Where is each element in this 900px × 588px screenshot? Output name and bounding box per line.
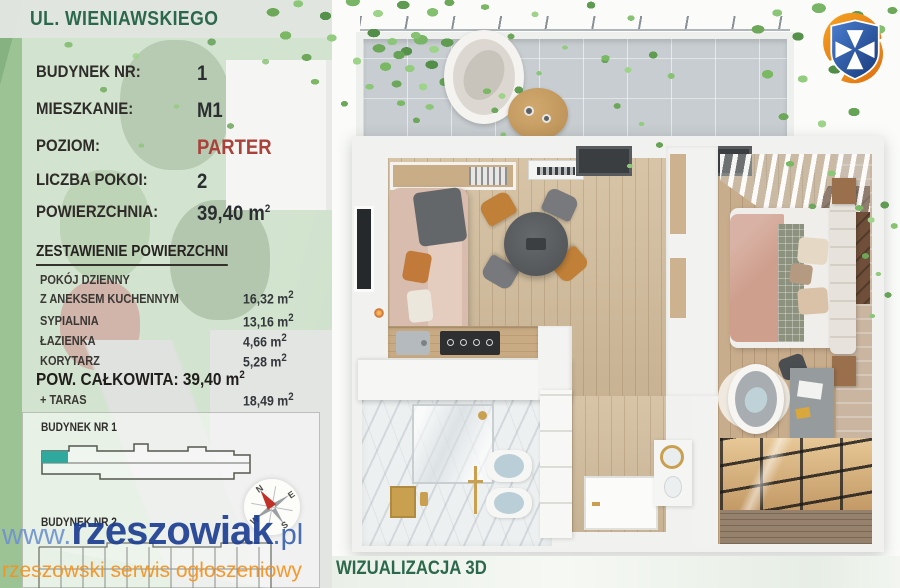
visualization-panel: WIZUALIZACJA 3D xyxy=(332,0,900,588)
terrace-table xyxy=(508,88,568,140)
cup xyxy=(524,106,534,116)
hall-vanity xyxy=(654,440,692,506)
living-window xyxy=(354,206,374,292)
area-value: 16,32 m2 xyxy=(243,289,294,307)
bidet xyxy=(486,488,532,518)
terrace-value: 18,49 m2 xyxy=(243,391,294,409)
city-crest-logo xyxy=(820,12,890,86)
watermark-www[interactable]: www. xyxy=(2,519,71,551)
kitchen-column xyxy=(538,326,572,400)
basin xyxy=(664,476,682,498)
terrace-glass-door xyxy=(576,146,632,176)
spec-value: 39,40 m2 xyxy=(197,202,270,226)
corridor-wall xyxy=(692,396,718,546)
glass-roof-wardrobe xyxy=(720,438,872,510)
street-name: UL. WIENIAWSKIEGO xyxy=(30,8,218,31)
street-bar: UL. WIENIAWSKIEGO xyxy=(0,0,332,38)
area-value: 4,66 m2 xyxy=(243,332,287,350)
building1-label: BUDYNEK NR 1 xyxy=(41,422,117,434)
bed-pillow xyxy=(797,237,829,266)
total-area: POW. CAŁKOWITA: 39,40 m2 xyxy=(36,369,245,390)
bed-blanket xyxy=(730,214,784,342)
wall-lamp xyxy=(374,308,384,318)
watermark-tld[interactable]: .pl xyxy=(273,519,304,551)
bed-pillow xyxy=(797,287,829,315)
round-mirror xyxy=(660,445,684,469)
sofa-throw xyxy=(412,187,467,247)
area-room: ŁAZIENKA xyxy=(40,334,96,348)
gold-decor-small xyxy=(420,492,428,506)
desk xyxy=(790,368,834,438)
spec-value: M1 xyxy=(197,99,223,123)
wood-panel xyxy=(670,154,686,234)
spec-row-area: POWIERZCHNIA: 39,40 m2 xyxy=(0,202,332,228)
cooktop xyxy=(440,331,500,355)
watermark-tagline: rzeszowski serwis ogłoszeniowy xyxy=(2,559,302,583)
wood-panel xyxy=(670,258,686,318)
spec-value: 2 xyxy=(197,170,207,194)
cup xyxy=(542,114,551,123)
terrace-label: + TARAS xyxy=(40,393,87,407)
bed-pillow xyxy=(789,263,814,286)
dining-table xyxy=(504,212,568,276)
area-room: KORYTARZ xyxy=(40,354,100,368)
watermark-link[interactable]: www.rzeszowiak.pl rzeszowski serwis ogło… xyxy=(2,512,302,583)
wardrobe-wall xyxy=(666,146,718,396)
terrace-railing xyxy=(360,16,790,31)
spec-row-level: POZIOM: PARTER xyxy=(0,136,332,162)
area-value: 13,16 m2 xyxy=(243,312,294,330)
sofa-pillow-orange xyxy=(402,250,433,284)
highlighted-unit xyxy=(42,451,68,463)
toilet xyxy=(486,450,532,482)
nightstand xyxy=(832,356,856,386)
hall-sideboard xyxy=(540,390,572,538)
area-room: SYPIALNIA xyxy=(40,314,99,328)
apartment-flyer: UL. WIENIAWSKIEGO BUDYNEK NR: 1 MIESZKAN… xyxy=(0,0,900,588)
nightstand xyxy=(832,178,856,204)
kitchen-sink xyxy=(396,331,430,355)
viz-caption: WIZUALIZACJA 3D xyxy=(336,558,487,580)
egg-chair xyxy=(728,364,784,434)
spec-label: BUDYNEK NR: xyxy=(36,62,141,82)
area-value: 5,28 m2 xyxy=(243,352,287,370)
building1-outline xyxy=(39,439,255,489)
spec-value: 1 xyxy=(197,62,207,86)
terrace-floor xyxy=(356,32,794,146)
area-room-line1: POKÓJ DZIENNY xyxy=(40,273,130,287)
area-room-line2: Z ANEKSEM KUCHENNYM xyxy=(40,292,179,306)
entrance-door xyxy=(584,476,658,530)
spec-label: POZIOM: xyxy=(36,136,100,156)
wardrobe-wood-band xyxy=(720,510,872,544)
watermark-url[interactable]: www.rzeszowiak.pl xyxy=(2,512,302,559)
spec-label: MIESZKANIE: xyxy=(36,99,133,119)
spec-label: LICZBA POKOI: xyxy=(36,170,148,190)
towel-rail xyxy=(474,466,477,514)
gold-decor xyxy=(390,486,416,518)
watermark-name[interactable]: rzeszowiak xyxy=(71,509,272,553)
shower-head xyxy=(478,411,487,420)
spec-value-level: PARTER xyxy=(197,136,272,160)
spec-label: POWIERZCHNIA: xyxy=(36,202,158,222)
tv-console xyxy=(390,162,516,190)
spec-row-rooms: LICZBA POKOI: 2 xyxy=(0,170,332,196)
areas-heading: ZESTAWIENIE POWIERZCHNI xyxy=(36,243,228,266)
shower xyxy=(412,404,494,484)
laptop xyxy=(797,380,823,399)
spec-row-apartment: MIESZKANIE: M1 xyxy=(0,99,332,125)
spec-row-building: BUDYNEK NR: 1 xyxy=(0,62,332,88)
paper xyxy=(795,407,811,419)
sofa-pillow-white xyxy=(406,289,433,323)
bed-headboard xyxy=(830,202,856,354)
